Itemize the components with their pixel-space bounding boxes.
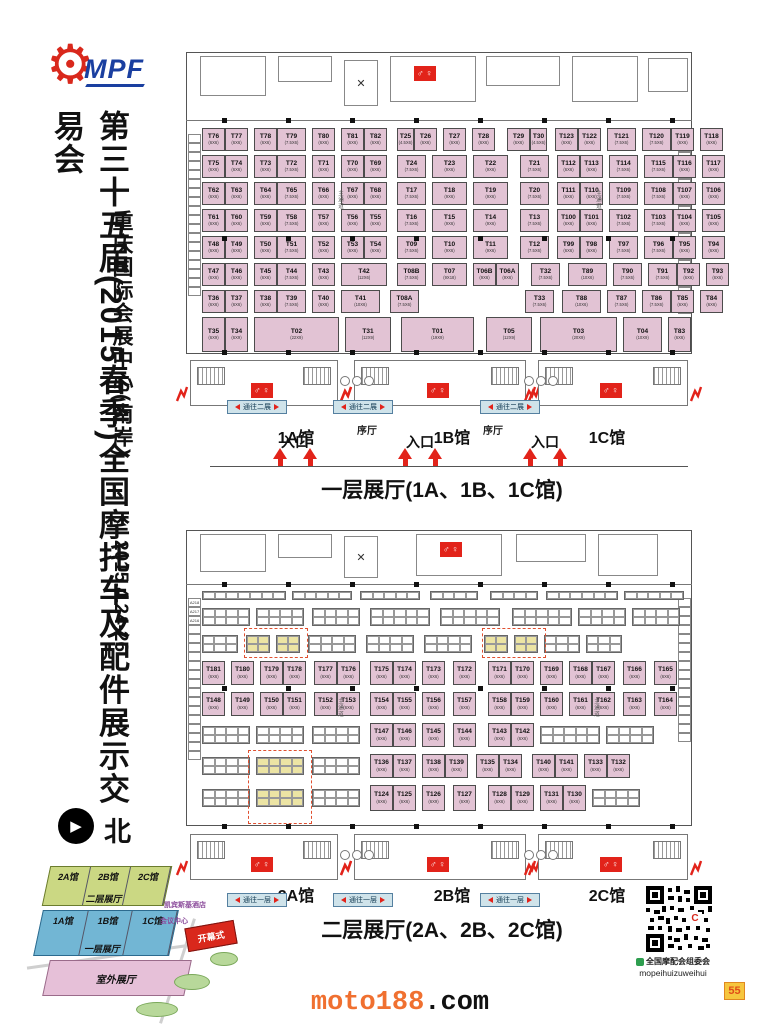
small-booth-cell bbox=[448, 644, 460, 652]
minimap-floor1-label: 一层展厅 bbox=[34, 942, 171, 955]
column-marker bbox=[478, 582, 483, 587]
side-room-cell bbox=[188, 260, 201, 269]
column-marker bbox=[286, 582, 291, 587]
booth-T10: T10(9X6) bbox=[432, 236, 467, 259]
booth-T99: T99(6X6) bbox=[557, 236, 580, 259]
small-booth-cell bbox=[443, 592, 455, 599]
booth-T41: T41(10X6) bbox=[341, 290, 380, 313]
small-booth-cell bbox=[269, 758, 281, 766]
floor2-title: 二层展厅(2A、2B、2C馆) bbox=[186, 914, 698, 944]
side-room-cell: A217 bbox=[188, 607, 201, 616]
small-booth-cell bbox=[238, 758, 250, 766]
small-booth-cell bbox=[648, 592, 660, 599]
passage-label: 通往一层 bbox=[333, 893, 393, 907]
minimap-floor1-block: 1A馆 1B馆 1C馆 一层展厅 bbox=[33, 910, 179, 956]
small-booth-cell bbox=[203, 592, 215, 599]
small-booth-cell bbox=[579, 609, 591, 617]
booth-T87: T87(7.5X6) bbox=[607, 290, 636, 313]
small-booth-cell bbox=[607, 727, 619, 735]
booth-T141: T141(6X6) bbox=[555, 754, 578, 778]
aisle-label: 主通道 bbox=[592, 698, 600, 718]
side-room-cell bbox=[188, 697, 201, 706]
small-booth-cell bbox=[361, 592, 373, 599]
booth-T06A: T06A(9X6) bbox=[496, 263, 519, 286]
booth-T104: T104(6X6) bbox=[673, 209, 696, 232]
booth-T08B: T08B(7.5X6) bbox=[397, 263, 426, 286]
column-marker bbox=[414, 350, 419, 355]
service-room bbox=[200, 534, 266, 572]
small-booth-cell bbox=[203, 644, 214, 652]
small-booth-cell bbox=[487, 617, 499, 625]
small-booth-cell bbox=[238, 609, 250, 617]
small-booth-cell bbox=[348, 758, 360, 766]
landscape-green bbox=[136, 1002, 178, 1017]
small-booth-cell bbox=[553, 735, 565, 743]
booth-T176: T176(6X6) bbox=[337, 661, 360, 685]
corridor-connector bbox=[524, 376, 558, 386]
corridor-dot bbox=[524, 850, 534, 860]
aisle-label: 主通道 bbox=[594, 190, 602, 210]
service-room bbox=[572, 56, 638, 102]
small-booth-cell bbox=[642, 727, 654, 735]
small-booth-strip bbox=[202, 635, 238, 653]
aisle-gap bbox=[352, 590, 360, 600]
venue-name: 重庆国际会展中心(南岸) bbox=[106, 210, 136, 540]
small-booth-strip bbox=[308, 635, 356, 653]
small-booth-cell bbox=[215, 766, 227, 774]
column-marker bbox=[414, 824, 419, 829]
stairs-icon bbox=[303, 367, 331, 385]
small-booth-cell bbox=[269, 735, 281, 743]
site-overview-map: 2A馆 2B馆 2C馆 二层展厅 1A馆 1B馆 1C馆 一层展厅 室外展厅 开… bbox=[26, 856, 241, 1028]
small-booth-strip bbox=[202, 757, 250, 775]
booth-T51: T51(7.5X6) bbox=[277, 236, 306, 259]
small-booth-cell bbox=[553, 727, 565, 735]
corridor-connector bbox=[524, 850, 558, 860]
small-booth-cell bbox=[292, 617, 304, 625]
booth-T35: T35(6X9) bbox=[202, 317, 225, 352]
side-room-cell bbox=[188, 152, 201, 161]
column-marker bbox=[542, 686, 547, 691]
small-booth-cell bbox=[556, 636, 567, 644]
booth-T108: T108(7.5X6) bbox=[644, 182, 673, 205]
booth-T147: T147(6X6) bbox=[370, 723, 393, 747]
stairs-icon bbox=[303, 841, 331, 859]
side-room-cell bbox=[188, 715, 201, 724]
small-booth-cell bbox=[437, 636, 449, 644]
small-booth-cell bbox=[258, 636, 269, 644]
booth-T177: T177(6X6) bbox=[314, 661, 337, 685]
side-room-cell bbox=[188, 269, 201, 278]
small-booth-cell bbox=[325, 609, 337, 617]
booth-T127: T127(6X9) bbox=[453, 785, 476, 811]
corridor-dot bbox=[340, 850, 350, 860]
small-booth-cell bbox=[336, 798, 348, 806]
small-booth-cell bbox=[576, 735, 588, 743]
booth-T39: T39(7.5X6) bbox=[277, 290, 306, 313]
booth-T109: T109(7.5X6) bbox=[609, 182, 638, 205]
booth-row bbox=[202, 634, 680, 654]
small-booth-cell bbox=[336, 617, 348, 625]
aisle-gap bbox=[387, 182, 397, 205]
small-booth-strip bbox=[312, 726, 360, 744]
small-booth-cell bbox=[316, 592, 328, 599]
aisle-gap bbox=[508, 236, 520, 259]
small-booth-cell bbox=[390, 636, 402, 644]
small-booth-cell bbox=[226, 617, 238, 625]
booth-T116: T116(6X6) bbox=[673, 155, 696, 178]
booth-T179: T179(6X6) bbox=[260, 661, 283, 685]
small-booth-cell bbox=[215, 592, 227, 599]
small-booth-cell bbox=[292, 766, 304, 774]
small-booth-cell bbox=[545, 644, 556, 652]
booth-T175: T175(6X6) bbox=[370, 661, 393, 685]
passage-label-text: 通往二展 bbox=[349, 402, 377, 412]
booth-T152: T152(6X6) bbox=[314, 692, 337, 716]
small-booth-strip bbox=[546, 591, 618, 600]
small-booth-cell bbox=[292, 727, 304, 735]
passage-label-text: 通往一层 bbox=[349, 895, 377, 905]
small-booth-cell bbox=[203, 609, 215, 617]
aisle-gap bbox=[476, 785, 488, 811]
column-marker bbox=[606, 824, 611, 829]
booth-T40: T40(6X6) bbox=[312, 290, 335, 313]
booth-T131: T131(6X6) bbox=[540, 785, 563, 811]
booth-T67: T67(6X6) bbox=[341, 182, 364, 205]
side-room-cell bbox=[188, 215, 201, 224]
booth-row: T136(6X6)T137(6X6)T138(6X6)T139(6X6)T135… bbox=[202, 754, 680, 778]
small-booth-cell bbox=[402, 644, 414, 652]
booth-T85: T85(6X6) bbox=[671, 290, 694, 313]
small-booth-cell bbox=[642, 735, 654, 743]
small-booth-cell bbox=[441, 609, 453, 617]
small-booth-strip bbox=[512, 608, 572, 626]
booth-T168: T168(6X6) bbox=[569, 661, 592, 685]
small-booth-cell bbox=[277, 644, 288, 652]
small-booth-strip bbox=[586, 635, 622, 653]
small-booth-cell bbox=[257, 790, 269, 798]
corridor-connector bbox=[340, 850, 374, 860]
booth-T158: T158(6X6) bbox=[488, 692, 511, 716]
small-booth-cell bbox=[536, 609, 548, 617]
qr-caption-pinyin: mopeihuizuweihui bbox=[608, 968, 738, 978]
corridor-dot bbox=[524, 376, 534, 386]
booth-T143: T143(6X6) bbox=[488, 723, 511, 747]
aisle-gap bbox=[508, 209, 520, 232]
small-booth-strip bbox=[484, 635, 508, 653]
small-booth-strip bbox=[366, 635, 414, 653]
small-booth-cell bbox=[257, 758, 269, 766]
small-booth-cell bbox=[226, 758, 238, 766]
small-booth-cell bbox=[288, 636, 299, 644]
floor1-left-side-rooms bbox=[188, 134, 201, 296]
small-booth-cell bbox=[628, 798, 640, 806]
aisle-gap bbox=[508, 155, 520, 178]
small-booth-cell bbox=[453, 609, 465, 617]
passage-label-text: 通往一层 bbox=[496, 895, 524, 905]
qr-code: C bbox=[646, 886, 712, 952]
small-booth-cell bbox=[367, 636, 379, 644]
booth-T08A: T08A(7.5X6) bbox=[390, 290, 419, 313]
small-booth-cell bbox=[238, 790, 250, 798]
floor1-booth-grid: T76(6X6)T77(6X6)T78(6X6)T79(7.5X6)T80(6X… bbox=[202, 128, 680, 356]
restroom-icon: ♂♀ bbox=[427, 383, 449, 398]
column-marker bbox=[286, 350, 291, 355]
small-booth-cell bbox=[628, 790, 640, 798]
booth-T165: T165(6X6) bbox=[654, 661, 677, 685]
small-booth-cell bbox=[660, 592, 672, 599]
booth-T124: T124(6X6) bbox=[370, 785, 393, 811]
small-booth-cell bbox=[348, 735, 360, 743]
small-booth-cell bbox=[203, 766, 215, 774]
booth-T145: T145(6X6) bbox=[422, 723, 445, 747]
booth-T55: T55(6X6) bbox=[364, 209, 387, 232]
escalator-icon bbox=[175, 385, 189, 403]
aisle-gap bbox=[430, 607, 440, 627]
aisle-gap bbox=[356, 634, 366, 654]
small-booth-cell bbox=[406, 617, 418, 625]
corridor-structure: ♂♀ bbox=[538, 360, 688, 406]
small-booth-cell bbox=[668, 609, 680, 617]
small-booth-cell bbox=[503, 592, 515, 599]
small-booth-cell bbox=[313, 758, 325, 766]
small-booth-strip bbox=[312, 789, 360, 807]
small-booth-cell bbox=[325, 727, 337, 735]
restroom-icon: ♂♀ bbox=[251, 857, 273, 872]
qr-caption: 全国摩配会组委会 bbox=[608, 956, 738, 967]
column-marker bbox=[606, 582, 611, 587]
small-booth-cell bbox=[605, 798, 617, 806]
aisle-gap bbox=[549, 209, 557, 232]
passage-label-text: 通往一层 bbox=[243, 895, 271, 905]
service-room bbox=[598, 534, 658, 576]
booth-row: T75(6X6)T74(6X6)T73(6X6)T72(7.5X6)T71(6X… bbox=[202, 155, 680, 178]
aisle-gap bbox=[387, 263, 397, 286]
booth-T82: T82(6X6) bbox=[364, 128, 387, 151]
small-booth-cell bbox=[614, 609, 626, 617]
elevator-icon: ✕ bbox=[344, 60, 378, 106]
small-booth-cell bbox=[610, 644, 621, 652]
small-booth-cell bbox=[247, 644, 258, 652]
booth-T22: T22(9X6) bbox=[473, 155, 508, 178]
passage-label-text: 通往二展 bbox=[496, 402, 524, 412]
aisle-gap bbox=[646, 692, 654, 716]
corridor-dot bbox=[536, 850, 546, 860]
small-booth-strip bbox=[256, 608, 304, 626]
small-booth-strip bbox=[292, 591, 352, 600]
small-booth-cell bbox=[425, 636, 437, 644]
small-booth-cell bbox=[226, 790, 238, 798]
corridor-dot bbox=[364, 376, 374, 386]
small-booth-cell bbox=[579, 617, 591, 625]
small-booth-cell bbox=[313, 609, 325, 617]
booth-T13: T13(7.5X6) bbox=[520, 209, 549, 232]
booth-T69: T69(6X6) bbox=[364, 155, 387, 178]
booth-T112: T112(6X6) bbox=[557, 155, 580, 178]
booth-T28: T28(6X6) bbox=[472, 128, 495, 151]
small-booth-cell bbox=[257, 798, 269, 806]
small-booth-cell bbox=[238, 766, 250, 774]
booth-T102: T102(7.5X6) bbox=[609, 209, 638, 232]
small-booth-cell bbox=[336, 609, 348, 617]
small-booth-cell bbox=[332, 636, 344, 644]
column-marker bbox=[222, 824, 227, 829]
small-booth-cell bbox=[292, 758, 304, 766]
aisle-gap bbox=[554, 290, 562, 313]
small-booth-strip bbox=[256, 757, 304, 775]
booth-T149: T149(6X6) bbox=[231, 692, 254, 716]
booth-T92: T92(6X6) bbox=[677, 263, 700, 286]
event-dates: 2015.4.24-26 bbox=[109, 540, 131, 690]
booth-T07: T07(9X18) bbox=[432, 263, 467, 286]
small-booth-cell bbox=[238, 617, 250, 625]
small-booth-cell bbox=[610, 636, 621, 644]
small-booth-cell bbox=[262, 592, 274, 599]
booth-T56: T56(6X6) bbox=[341, 209, 364, 232]
booth-T178: T178(6X6) bbox=[283, 661, 306, 685]
small-booth-strip bbox=[256, 789, 304, 807]
booth-row: T124(6X6)T125(6X6)T126(6X9)T127(6X9)T128… bbox=[202, 785, 680, 811]
booth-T63: T63(6X6) bbox=[225, 182, 248, 205]
booth-T49: T49(6X6) bbox=[225, 236, 248, 259]
side-room-cell bbox=[188, 688, 201, 697]
aisle-gap bbox=[474, 317, 486, 352]
booth-T62: T62(6X6) bbox=[202, 182, 225, 205]
logo-text: MPF bbox=[84, 54, 144, 85]
booth-T151: T151(6X6) bbox=[283, 692, 306, 716]
restroom-icon: ♂♀ bbox=[414, 66, 436, 81]
small-booth-cell bbox=[305, 592, 317, 599]
aisle-gap bbox=[420, 590, 430, 600]
page-number: 55 bbox=[724, 982, 745, 1000]
small-booth-cell bbox=[215, 735, 227, 743]
small-booth-cell bbox=[238, 798, 250, 806]
small-booth-cell bbox=[564, 735, 576, 743]
booth-T146: T146(6X6) bbox=[393, 723, 416, 747]
small-booth-cell bbox=[637, 592, 649, 599]
corridor-dot bbox=[536, 376, 546, 386]
small-booth-strip bbox=[246, 635, 270, 653]
entrance-arrow-icon bbox=[428, 448, 442, 468]
small-booth-cell bbox=[269, 766, 281, 774]
small-booth-cell bbox=[348, 609, 360, 617]
floor1-band-line bbox=[186, 120, 692, 121]
minimap-outdoor-label: 室外展厅 bbox=[95, 971, 138, 986]
booth-T136: T136(6X6) bbox=[370, 754, 393, 778]
booth-T161: T161(6X6) bbox=[569, 692, 592, 716]
aisle-gap bbox=[615, 661, 623, 685]
aisle-gap bbox=[472, 634, 484, 654]
booth-T135: T135(6X6) bbox=[476, 754, 499, 778]
booth-T94: T94(6X6) bbox=[702, 236, 725, 259]
booth-T76: T76(6X6) bbox=[202, 128, 225, 151]
column-marker bbox=[222, 350, 227, 355]
corridor-dot bbox=[548, 376, 558, 386]
small-booth-cell bbox=[656, 617, 668, 625]
minimap-floor2-block: 2A馆 2B馆 2C馆 二层展厅 bbox=[42, 866, 173, 906]
column-marker bbox=[350, 236, 355, 241]
booth-T121: T121(7.5X6) bbox=[607, 128, 636, 151]
aisle-gap bbox=[304, 754, 312, 778]
column-marker bbox=[414, 582, 419, 587]
small-booth-strip bbox=[578, 608, 626, 626]
small-booth-cell bbox=[215, 609, 227, 617]
column-marker bbox=[542, 118, 547, 123]
small-booth-cell bbox=[226, 592, 238, 599]
corridor-dot bbox=[364, 850, 374, 860]
column-marker bbox=[222, 118, 227, 123]
small-booth-cell bbox=[576, 727, 588, 735]
minimap-conference-label: 会议中心 bbox=[160, 916, 188, 926]
booth-T180: T180(6X6) bbox=[231, 661, 254, 685]
small-booth-cell bbox=[645, 617, 657, 625]
aisle-gap bbox=[387, 128, 397, 151]
small-booth-cell bbox=[321, 636, 333, 644]
booth-T137: T137(6X6) bbox=[393, 754, 416, 778]
small-booth-strip bbox=[514, 635, 538, 653]
small-booth-cell bbox=[464, 609, 476, 617]
small-booth-strip bbox=[276, 635, 300, 653]
booth-T173: T173(6X6) bbox=[422, 661, 445, 685]
small-booth-cell bbox=[407, 592, 419, 599]
small-booth-cell bbox=[280, 617, 292, 625]
booth-T34: T34(6X9) bbox=[225, 317, 248, 352]
small-booth-cell bbox=[526, 592, 538, 599]
small-booth-cell bbox=[417, 609, 429, 617]
aisle-gap bbox=[360, 692, 370, 716]
booth-T123: T123(6X6) bbox=[555, 128, 578, 151]
booth-T133: T133(6X6) bbox=[584, 754, 607, 778]
booth-T170: T170(6X6) bbox=[511, 661, 534, 685]
red-arrow-icon bbox=[380, 404, 385, 410]
foyer-label: 序厅 bbox=[483, 422, 503, 437]
passage-label: 通往二展 bbox=[227, 400, 287, 414]
small-booth-cell bbox=[514, 592, 526, 599]
small-booth-strip bbox=[544, 635, 580, 653]
side-room-cell bbox=[188, 742, 201, 751]
small-booth-cell bbox=[448, 636, 460, 644]
north-label: 北 bbox=[104, 810, 131, 849]
small-booth-cell bbox=[587, 735, 599, 743]
side-room-cell bbox=[188, 179, 201, 188]
booth-T89: T89(10X6) bbox=[568, 263, 607, 286]
aisle-gap bbox=[547, 128, 555, 151]
small-booth-cell bbox=[431, 592, 443, 599]
website-name: moto188 bbox=[311, 988, 424, 1018]
small-booth-cell bbox=[328, 592, 340, 599]
small-booth-strip bbox=[632, 608, 680, 626]
column-marker bbox=[670, 118, 675, 123]
column-marker bbox=[286, 686, 291, 691]
small-booth-cell bbox=[214, 644, 225, 652]
booth-T125: T125(6X6) bbox=[393, 785, 416, 811]
aisle-gap bbox=[387, 236, 397, 259]
aisle-gap bbox=[360, 723, 370, 747]
small-booth-cell bbox=[373, 592, 385, 599]
small-booth-cell bbox=[525, 617, 537, 625]
small-booth-cell bbox=[203, 798, 215, 806]
hall-label-1b: 1B馆 bbox=[434, 424, 470, 448]
entrance-arrow-icon bbox=[523, 448, 537, 468]
small-booth-cell bbox=[247, 636, 258, 644]
booth-T159: T159(6X6) bbox=[511, 692, 534, 716]
side-room-cell bbox=[188, 751, 201, 760]
small-booth-strip bbox=[592, 789, 640, 807]
small-booth-cell bbox=[292, 798, 304, 806]
website-tld: .com bbox=[424, 988, 489, 1018]
small-booth-cell bbox=[313, 727, 325, 735]
booth-T04: T04(10X9) bbox=[623, 317, 662, 352]
